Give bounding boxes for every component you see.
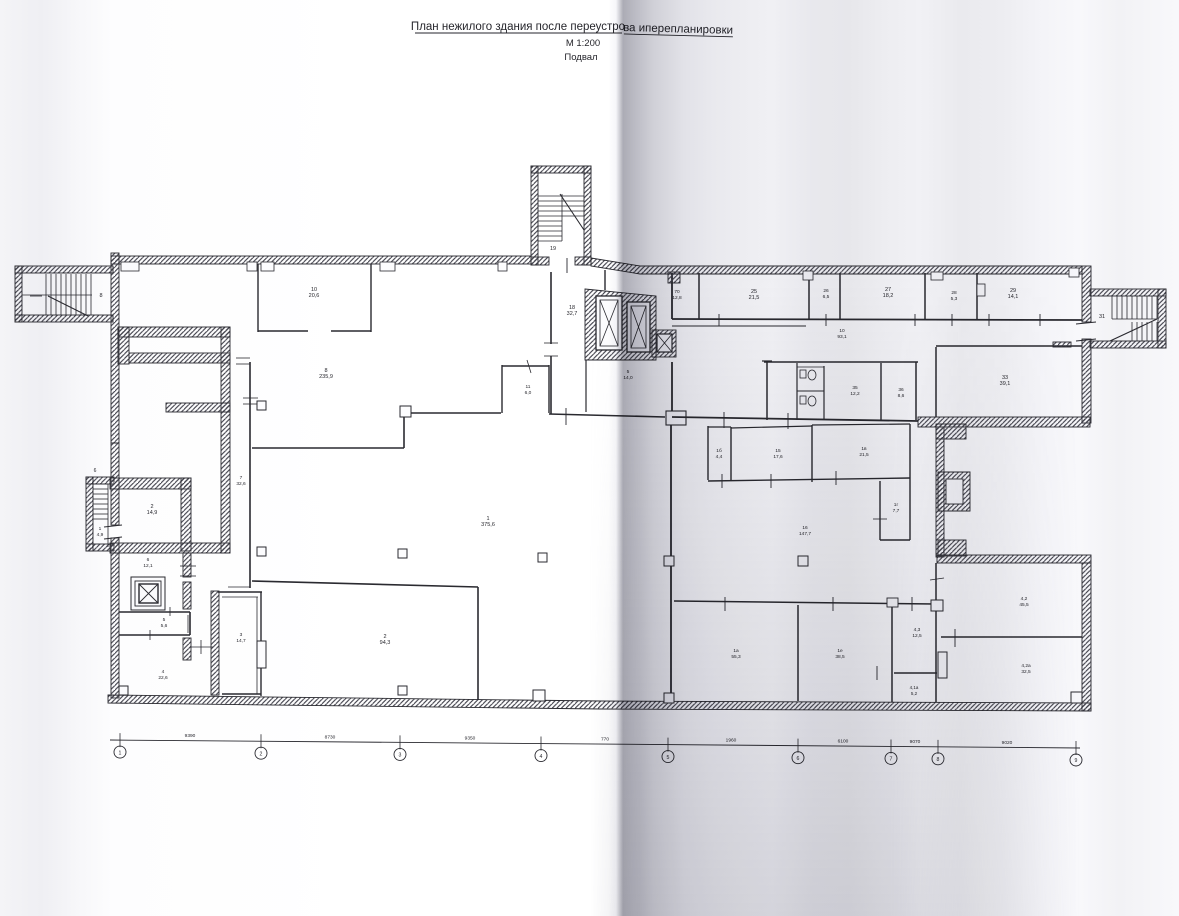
svg-text:3: 3 <box>240 632 243 638</box>
svg-text:93,1: 93,1 <box>837 334 847 340</box>
svg-text:31: 31 <box>1099 314 1105 320</box>
svg-text:9020: 9020 <box>1002 740 1013 746</box>
svg-text:4,2: 4,2 <box>1021 596 1028 602</box>
svg-text:1в: 1в <box>861 446 867 452</box>
svg-text:14,0: 14,0 <box>623 375 633 381</box>
svg-text:План нежилого здания после пер: План нежилого здания после переустро <box>411 21 625 33</box>
svg-text:8: 8 <box>937 757 940 763</box>
svg-text:5,2: 5,2 <box>911 691 918 696</box>
svg-text:32,6: 32,6 <box>236 481 246 487</box>
svg-text:4: 4 <box>540 754 543 760</box>
svg-text:7,7: 7,7 <box>893 508 900 514</box>
svg-text:22,6: 22,6 <box>158 675 168 681</box>
svg-text:21,5: 21,5 <box>749 295 760 301</box>
svg-text:147,7: 147,7 <box>799 531 811 537</box>
svg-text:3: 3 <box>399 753 402 759</box>
svg-text:10: 10 <box>839 328 845 334</box>
svg-text:14,9: 14,9 <box>147 510 158 516</box>
svg-text:45,5: 45,5 <box>1019 602 1029 608</box>
svg-text:770: 770 <box>601 737 609 743</box>
svg-text:1а: 1а <box>733 648 739 654</box>
svg-text:6: 6 <box>147 557 150 563</box>
svg-text:5,3: 5,3 <box>951 296 958 302</box>
svg-text:9: 9 <box>1075 758 1078 764</box>
svg-text:4,4: 4,4 <box>716 454 723 460</box>
svg-text:4,2а: 4,2а <box>1021 663 1031 669</box>
svg-text:375,6: 375,6 <box>481 522 495 528</box>
svg-text:9350: 9350 <box>465 735 476 741</box>
svg-text:1б: 1б <box>716 448 722 454</box>
svg-text:6: 6 <box>94 468 97 474</box>
svg-text:2: 2 <box>260 751 263 757</box>
svg-text:20,6: 20,6 <box>309 293 320 299</box>
svg-text:4,1а: 4,1а <box>910 685 919 690</box>
svg-text:5,6: 5,6 <box>161 623 168 629</box>
svg-text:6: 6 <box>797 756 800 762</box>
svg-text:6,5: 6,5 <box>823 294 830 300</box>
svg-text:1: 1 <box>119 750 122 756</box>
svg-text:6,0: 6,0 <box>525 390 532 396</box>
svg-text:39,1: 39,1 <box>1000 381 1011 387</box>
svg-text:1е: 1е <box>837 648 843 654</box>
svg-text:7: 7 <box>240 475 243 481</box>
svg-text:26: 26 <box>823 288 829 294</box>
svg-text:55,3: 55,3 <box>731 654 741 660</box>
svg-text:М 1:200: М 1:200 <box>566 38 600 49</box>
svg-text:1: 1 <box>99 526 102 532</box>
svg-text:Подвал: Подвал <box>564 52 597 63</box>
svg-text:4: 4 <box>162 669 165 675</box>
svg-text:38,5: 38,5 <box>835 654 845 660</box>
svg-text:94,3: 94,3 <box>380 640 391 646</box>
svg-text:11: 11 <box>526 384 531 390</box>
svg-text:8730: 8730 <box>325 734 336 740</box>
svg-text:12,8: 12,8 <box>672 295 682 301</box>
svg-text:12,1: 12,1 <box>143 563 153 569</box>
svg-text:32,7: 32,7 <box>567 311 578 317</box>
svg-text:15: 15 <box>775 448 781 454</box>
svg-text:4,3: 4,3 <box>914 627 921 633</box>
svg-text:7: 7 <box>890 757 893 763</box>
svg-text:8,6: 8,6 <box>898 393 905 399</box>
svg-text:70: 70 <box>674 289 680 295</box>
svg-text:19: 19 <box>550 246 556 252</box>
svg-text:4,9: 4,9 <box>97 532 104 538</box>
svg-text:16: 16 <box>802 525 808 531</box>
svg-text:6100: 6100 <box>838 739 849 745</box>
svg-text:32,5: 32,5 <box>1021 669 1031 675</box>
svg-text:235,9: 235,9 <box>319 374 333 380</box>
svg-text:17,6: 17,6 <box>773 454 783 460</box>
svg-text:5: 5 <box>627 369 630 375</box>
svg-text:5: 5 <box>667 755 670 761</box>
svg-text:18,2: 18,2 <box>883 293 894 299</box>
svg-text:12,5: 12,5 <box>912 633 922 639</box>
svg-text:9070: 9070 <box>910 739 921 745</box>
svg-text:21,5: 21,5 <box>859 452 869 458</box>
svg-text:1г: 1г <box>894 502 899 508</box>
svg-text:28: 28 <box>951 290 957 296</box>
svg-text:35: 35 <box>852 385 858 391</box>
svg-text:36: 36 <box>898 387 904 393</box>
svg-text:14,7: 14,7 <box>236 638 246 644</box>
svg-text:12,2: 12,2 <box>850 391 860 397</box>
svg-text:9390: 9390 <box>185 733 196 739</box>
svg-text:14,1: 14,1 <box>1008 294 1019 300</box>
svg-text:8: 8 <box>99 293 102 299</box>
svg-text:1960: 1960 <box>726 738 737 744</box>
svg-text:5: 5 <box>163 617 166 623</box>
